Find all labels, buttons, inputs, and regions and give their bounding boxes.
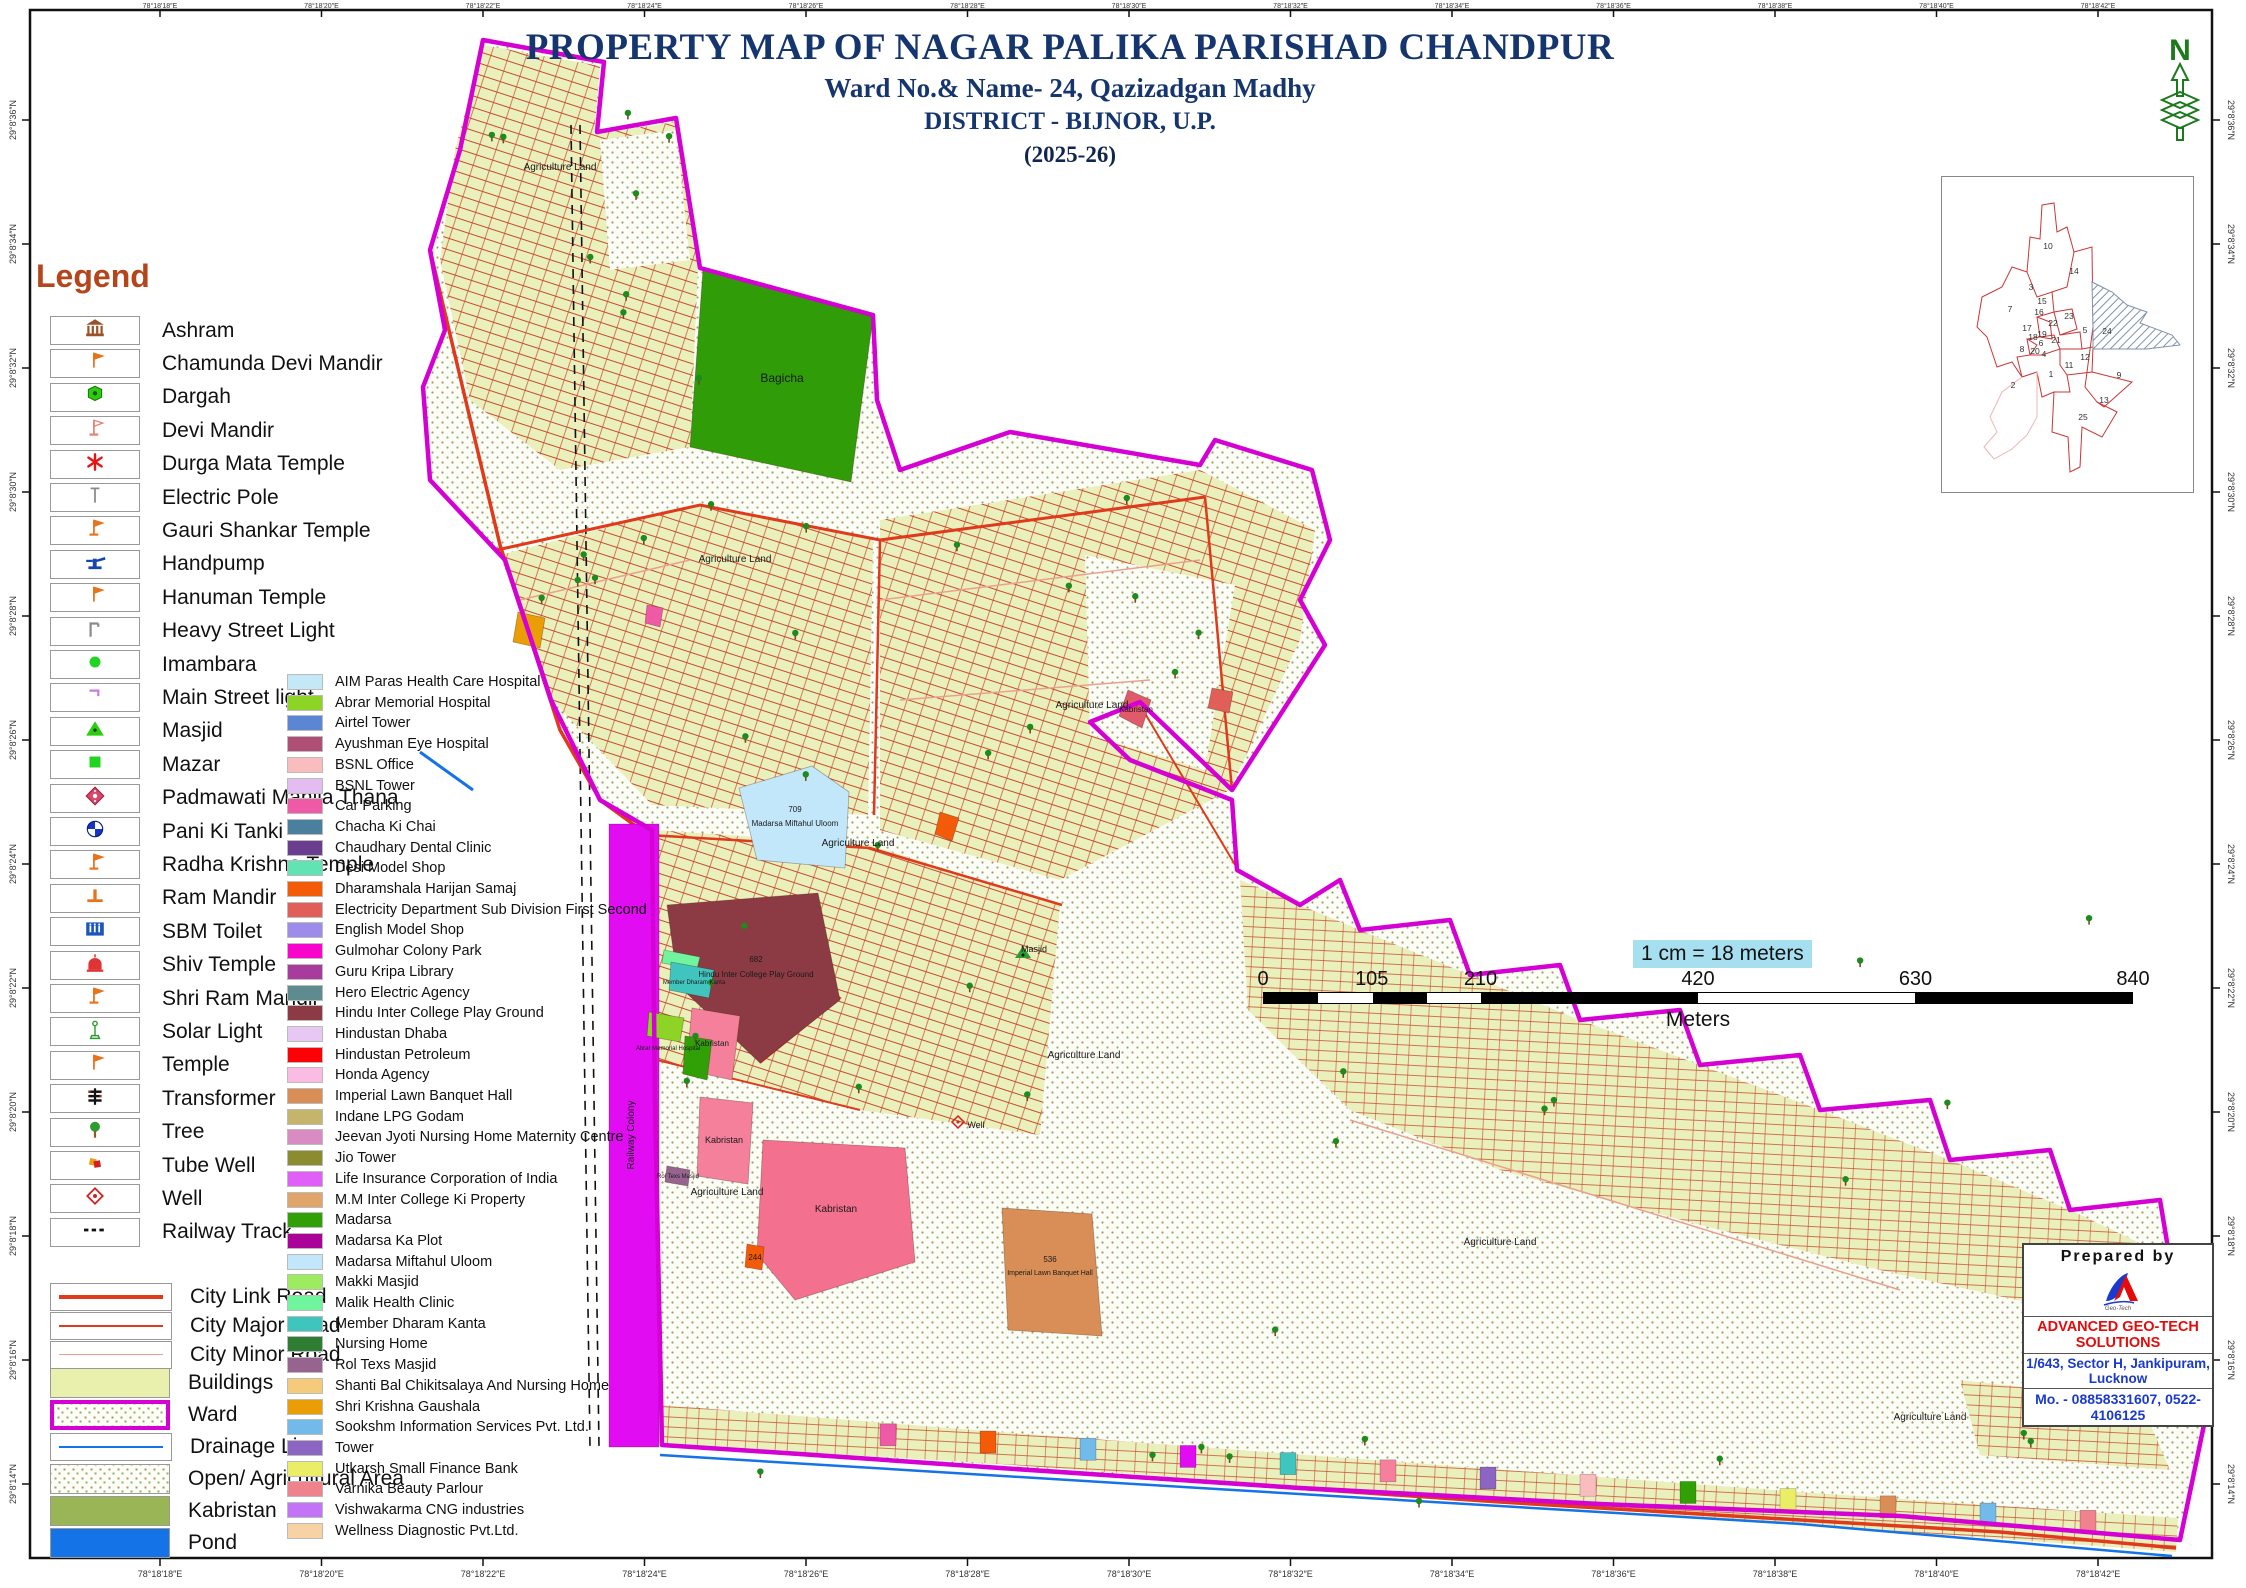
tree-icon bbox=[1857, 957, 1863, 967]
building-legend-item: Jeevan Jyoti Nursing Home Maternity Cent… bbox=[287, 1127, 624, 1147]
solar-icon bbox=[80, 1018, 110, 1045]
map-label: Agriculture Land bbox=[1894, 1412, 1967, 1423]
legend-item-heavy-street-light: Heavy Street Light bbox=[50, 615, 335, 648]
flag-icon bbox=[80, 1052, 110, 1079]
building-legend-item: Chacha Ki Chai bbox=[287, 817, 436, 837]
color-swatch bbox=[287, 1357, 323, 1373]
map-label: Member Dharam Kanta bbox=[663, 980, 726, 986]
building-legend-item: Malik Health Clinic bbox=[287, 1293, 454, 1313]
tree-icon bbox=[80, 1119, 110, 1146]
longitude-tick-label: 78°18'30″E bbox=[1112, 2, 1147, 10]
legend-item-masjid: Masjid bbox=[50, 715, 223, 748]
latitude-tick-label: 29°8'26″N bbox=[8, 720, 18, 760]
map-label: Bagicha bbox=[760, 371, 804, 385]
legend-item-ashram: Ashram bbox=[50, 314, 234, 347]
longitude-tick-label: 78°18'20″E bbox=[299, 1569, 344, 1579]
color-swatch bbox=[287, 1316, 323, 1332]
rammandir-icon bbox=[80, 885, 110, 912]
map-label: Kabristan bbox=[705, 1135, 743, 1145]
building-legend-item: AIM Paras Health Care Hospital bbox=[287, 672, 541, 692]
pole-icon bbox=[80, 484, 110, 511]
legend-item-mazar: Mazar bbox=[50, 748, 220, 781]
page-title: PROPERTY MAP OF NAGAR PALIKA PARISHAD CH… bbox=[480, 26, 1660, 69]
building-legend-item: Gulmohar Colony Park bbox=[287, 941, 482, 961]
longitude-tick-label: 78°18'18″E bbox=[143, 2, 178, 10]
handpump-icon bbox=[80, 551, 110, 578]
map-label: 244 bbox=[748, 1253, 762, 1262]
latitude-tick-label: 29°8'16″N bbox=[8, 1340, 18, 1380]
mainlight-icon bbox=[80, 684, 110, 711]
property-map-page: { "title": { "line1": "PROPERTY MAP OF N… bbox=[0, 0, 2246, 1588]
inset-ward-number: 25 bbox=[2078, 412, 2088, 422]
color-swatch bbox=[287, 1399, 323, 1415]
circle-icon bbox=[80, 651, 110, 678]
tree-icon bbox=[2086, 915, 2092, 925]
band-building bbox=[1780, 1489, 1796, 1511]
railway-icon bbox=[80, 1219, 110, 1246]
tubewell-icon bbox=[80, 1152, 110, 1179]
latitude-tick-label: 29°8'16″N bbox=[2226, 1340, 2236, 1380]
color-swatch bbox=[287, 1378, 323, 1394]
toilet-icon bbox=[80, 918, 110, 945]
building-legend-item: Sookshm Information Services Pvt. Ltd. bbox=[287, 1417, 589, 1437]
color-swatch bbox=[287, 860, 323, 876]
inset-ward-number: 23 bbox=[2064, 311, 2074, 321]
legend-item-sbm-toilet: SBM Toilet bbox=[50, 915, 262, 948]
map-label: Imperial Lawn Banquet Hall bbox=[1007, 1270, 1093, 1277]
ward-index-inset-map: 1014315716232217524191821682041211192132… bbox=[1941, 176, 2194, 493]
legend-item-chamunda-devi-mandir: Chamunda Devi Mandir bbox=[50, 347, 383, 380]
north-arrow-icon: N bbox=[2150, 34, 2210, 144]
building-legend-item: Honda Agency bbox=[287, 1065, 429, 1085]
map-label: 536 bbox=[1043, 1255, 1057, 1264]
inset-ward-number: 24 bbox=[2102, 326, 2112, 336]
longitude-tick-label: 78°18'32″E bbox=[1268, 1569, 1313, 1579]
color-swatch bbox=[287, 1523, 323, 1539]
building-legend-item: Utkarsh Small Finance Bank bbox=[287, 1459, 518, 1479]
latitude-tick-label: 29°8'18″N bbox=[8, 1216, 18, 1256]
latitude-tick-label: 29°8'14″N bbox=[8, 1464, 18, 1504]
band-building bbox=[1380, 1460, 1396, 1482]
map-label: Abrar Memorial Hospital bbox=[636, 1046, 700, 1052]
inset-ward-number: 8 bbox=[2020, 344, 2025, 354]
latitude-tick-label: 29°8'30″N bbox=[2226, 472, 2236, 512]
building-legend-item: Madarsa Ka Plot bbox=[287, 1231, 442, 1251]
building-legend-item: Tower bbox=[287, 1438, 374, 1458]
scale-tick: 630 bbox=[1899, 968, 1932, 991]
building-legend-item: Life Insurance Corporation of India bbox=[287, 1169, 557, 1189]
color-swatch bbox=[287, 1005, 323, 1021]
map-label: Agriculture Land bbox=[691, 1187, 764, 1198]
color-swatch bbox=[287, 1233, 323, 1249]
scale-tick: 420 bbox=[1681, 968, 1714, 991]
latitude-tick-label: 29°8'22″N bbox=[8, 968, 18, 1008]
map-label: Kabristan bbox=[815, 1204, 857, 1215]
legend-item-railway-track: Railway Track bbox=[50, 1216, 293, 1249]
color-swatch bbox=[287, 1088, 323, 1104]
inset-ward-number: 2 bbox=[2011, 380, 2016, 390]
building-legend-item: BSNL Tower bbox=[287, 776, 415, 796]
map-label: Agriculture Land bbox=[699, 554, 772, 565]
longitude-tick-label: 78°18'38″E bbox=[1758, 2, 1793, 10]
inset-ward-number: 12 bbox=[2080, 352, 2090, 362]
legend-item-shri-ram-mandir: Shri Ram Mandir bbox=[50, 982, 320, 1015]
legend-item-well: Well bbox=[50, 1182, 202, 1215]
scale-tick: 0 bbox=[1257, 968, 1268, 991]
map-label: Agriculture Land bbox=[1048, 1050, 1121, 1061]
building-legend-item: Makki Masjid bbox=[287, 1272, 419, 1292]
scale-unit-label: Meters bbox=[1263, 1008, 2133, 1032]
thana-icon bbox=[80, 785, 110, 812]
inset-ward-number: 9 bbox=[2117, 370, 2122, 380]
latitude-tick-label: 29°8'36″N bbox=[2226, 100, 2236, 140]
map-label: Railway Colony bbox=[626, 1101, 637, 1170]
inset-ward-number: 16 bbox=[2034, 307, 2044, 317]
longitude-tick-label: 78°18'40″E bbox=[1914, 1569, 1959, 1579]
latitude-tick-label: 29°8'36″N bbox=[8, 100, 18, 140]
geo-tech-logo: Geo-Tech bbox=[2026, 1267, 2210, 1311]
latitude-tick-label: 29°8'32″N bbox=[2226, 348, 2236, 388]
map-label: Agriculture Land bbox=[822, 838, 895, 849]
color-swatch bbox=[287, 840, 323, 856]
flag-outline-icon bbox=[80, 417, 110, 444]
building-legend-item: Desi Model Shop bbox=[287, 858, 445, 878]
building-legend-item: Varnika Beauty Parlour bbox=[287, 1479, 483, 1499]
flag-base-icon bbox=[80, 517, 110, 544]
color-swatch bbox=[287, 1440, 323, 1456]
legend-item-kabristan: Kabristan bbox=[50, 1494, 277, 1527]
map-label: Madarsa Miftahul Uloom bbox=[752, 819, 839, 828]
longitude-tick-label: 78°18'26″E bbox=[789, 2, 824, 10]
latitude-tick-label: 29°8'20″N bbox=[2226, 1092, 2236, 1132]
building-legend-item: Shanti Bal Chikitsalaya And Nursing Home bbox=[287, 1376, 609, 1396]
color-swatch bbox=[287, 736, 323, 752]
inset-ward-number: 10 bbox=[2043, 241, 2053, 251]
map-label: Masjid bbox=[1021, 944, 1047, 954]
legend-item-transformer: Transformer bbox=[50, 1082, 276, 1115]
building-legend-item: Nursing Home bbox=[287, 1334, 428, 1354]
inset-ward-number: 22 bbox=[2048, 318, 2058, 328]
legend-item-solar-light: Solar Light bbox=[50, 1015, 262, 1048]
shiv-icon bbox=[80, 952, 110, 979]
inset-ward-number: 3 bbox=[2029, 282, 2034, 292]
color-swatch bbox=[287, 902, 323, 918]
building-legend-item: Abrar Memorial Hospital bbox=[287, 693, 491, 713]
legend-item-tree: Tree bbox=[50, 1116, 204, 1149]
band-building bbox=[1580, 1474, 1596, 1496]
building-legend-item: Indane LPG Godam bbox=[287, 1107, 464, 1127]
band-building bbox=[1280, 1453, 1296, 1475]
building-legend-item: Hero Electric Agency bbox=[287, 983, 470, 1003]
map-label: Agriculture Land bbox=[1056, 700, 1129, 711]
legend-item-shiv-temple: Shiv Temple bbox=[50, 949, 276, 982]
scale-tick: 210 bbox=[1464, 968, 1497, 991]
longitude-tick-label: 78°18'42″E bbox=[2076, 1569, 2121, 1579]
building-legend-item: Chaudhary Dental Clinic bbox=[287, 838, 491, 858]
latitude-tick-label: 29°8'14″N bbox=[2226, 1464, 2236, 1504]
band-building bbox=[2080, 1510, 2096, 1532]
color-swatch bbox=[287, 1171, 323, 1187]
building-legend-item: Airtel Tower bbox=[287, 713, 410, 733]
color-swatch bbox=[287, 1461, 323, 1477]
color-swatch bbox=[287, 943, 323, 959]
inset-ward-number: 1 bbox=[2049, 369, 2054, 379]
color-swatch bbox=[287, 798, 323, 814]
asterisk-icon bbox=[80, 451, 110, 478]
color-swatch bbox=[287, 1336, 323, 1352]
color-swatch bbox=[287, 922, 323, 938]
map-label: Well bbox=[967, 1120, 984, 1130]
building-legend-item: Imperial Lawn Banquet Hall bbox=[287, 1086, 512, 1106]
longitude-tick-label: 78°18'34″E bbox=[1430, 1569, 1475, 1579]
building-legend-item: M.M Inter College Ki Property bbox=[287, 1190, 525, 1210]
legend-item-ram-mandir: Ram Mandir bbox=[50, 882, 276, 915]
band-building bbox=[880, 1424, 896, 1446]
legend-item-buildings: Buildings bbox=[50, 1366, 273, 1399]
building-legend-item: Vishwakarma CNG industries bbox=[287, 1500, 524, 1520]
inset-ward24-highlight bbox=[2092, 282, 2180, 349]
color-swatch bbox=[287, 778, 323, 794]
well-icon bbox=[80, 1185, 110, 1212]
color-swatch bbox=[287, 1150, 323, 1166]
color-swatch bbox=[287, 1254, 323, 1270]
latitude-tick-label: 29°8'22″N bbox=[2226, 968, 2236, 1008]
masjid-icon bbox=[80, 718, 110, 745]
legend-item-imambara: Imambara bbox=[50, 648, 257, 681]
band-building bbox=[1180, 1445, 1196, 1467]
color-swatch bbox=[287, 1295, 323, 1311]
building-legend-item: Ayushman Eye Hospital bbox=[287, 734, 489, 754]
flag-icon bbox=[80, 350, 110, 377]
color-swatch bbox=[287, 674, 323, 690]
building-legend-item: Wellness Diagnostic Pvt.Ltd. bbox=[287, 1521, 518, 1541]
latitude-tick-label: 29°8'34″N bbox=[8, 224, 18, 264]
legend-item-main-street-light: Main Street light bbox=[50, 681, 314, 714]
year-subtitle: (2025-26) bbox=[480, 142, 1660, 168]
inset-ward-number: 11 bbox=[2065, 360, 2074, 370]
legend-item-electric-pole: Electric Pole bbox=[50, 481, 279, 514]
legend-item-pani-ki-tanki: Pani Ki Tanki bbox=[50, 815, 283, 848]
flag-base-icon bbox=[80, 851, 110, 878]
building-legend-item: Guru Kripa Library bbox=[287, 962, 453, 982]
map-label: 709 bbox=[788, 805, 802, 814]
scale-bar-segments bbox=[1263, 992, 2133, 1004]
color-swatch bbox=[287, 964, 323, 980]
longitude-tick-label: 78°18'20″E bbox=[304, 2, 339, 10]
longitude-tick-label: 78°18'34″E bbox=[1435, 2, 1470, 10]
band-building bbox=[1480, 1467, 1496, 1489]
latitude-tick-label: 29°8'34″N bbox=[2226, 224, 2236, 264]
longitude-tick-label: 78°18'22″E bbox=[466, 2, 501, 10]
longitude-tick-label: 78°18'42″E bbox=[2081, 2, 2116, 10]
color-swatch bbox=[287, 985, 323, 1001]
latitude-tick-label: 29°8'26″N bbox=[2226, 720, 2236, 760]
legend-heading: Legend bbox=[36, 258, 150, 295]
transformer-icon bbox=[80, 1085, 110, 1112]
color-swatch bbox=[287, 1502, 323, 1518]
map-label: 682 bbox=[749, 955, 763, 964]
longitude-tick-label: 78°18'28″E bbox=[950, 2, 985, 10]
building-legend-item: English Model Shop bbox=[287, 920, 464, 940]
longitude-tick-label: 78°18'18″E bbox=[138, 1569, 183, 1579]
building-legend-item: Hindustan Petroleum bbox=[287, 1045, 470, 1065]
longitude-tick-label: 78°18'28″E bbox=[945, 1569, 990, 1579]
title-block: PROPERTY MAP OF NAGAR PALIKA PARISHAD CH… bbox=[480, 26, 1660, 168]
inset-ward-number: 18 bbox=[2028, 332, 2038, 342]
color-swatch bbox=[287, 1109, 323, 1125]
prepared-by-company: ADVANCED GEO-TECH SOLUTIONS bbox=[2024, 1316, 2212, 1353]
color-swatch bbox=[287, 881, 323, 897]
color-swatch bbox=[287, 1419, 323, 1435]
tree-icon bbox=[757, 1468, 763, 1478]
building-legend-item: Car Parking bbox=[287, 796, 412, 816]
scale-bar: 0105210420630840 Meters bbox=[1248, 968, 2148, 1032]
latitude-tick-label: 29°8'32″N bbox=[8, 348, 18, 388]
inset-ward-number: 14 bbox=[2069, 266, 2079, 276]
longitude-tick-label: 78°18'24″E bbox=[627, 2, 662, 10]
longitude-tick-label: 78°18'22″E bbox=[461, 1569, 506, 1579]
longitude-tick-label: 78°18'40″E bbox=[1919, 2, 1954, 10]
legend-item-hanuman-temple: Hanuman Temple bbox=[50, 581, 326, 614]
inset-ward-number: 4 bbox=[2042, 349, 2047, 359]
legend-item-durga-mata-temple: Durga Mata Temple bbox=[50, 448, 345, 481]
scale-tick: 105 bbox=[1355, 968, 1388, 991]
legend-item-drainage-line: Drainage Line bbox=[50, 1430, 321, 1463]
band-building bbox=[1680, 1481, 1696, 1503]
prepared-by-box: Prepared by Geo-Tech ADVANCED GEO-TECH S… bbox=[2022, 1243, 2214, 1427]
ashram-icon bbox=[80, 317, 110, 344]
inset-ward-number: 21 bbox=[2051, 335, 2061, 345]
inset-ward-number: 13 bbox=[2099, 395, 2109, 405]
map-label: Hindu Inter College Play Ground bbox=[698, 970, 813, 979]
legend-item-tube-well: Tube Well bbox=[50, 1149, 255, 1182]
latitude-tick-label: 29°8'24″N bbox=[8, 844, 18, 884]
flag-base-icon bbox=[80, 985, 110, 1012]
prepared-by-heading: Prepared by bbox=[2024, 1245, 2212, 1267]
legend-item-ward: Ward bbox=[50, 1398, 237, 1431]
building-legend-item: Madarsa bbox=[287, 1210, 391, 1230]
feature-car-parking-dot bbox=[645, 605, 663, 627]
latitude-tick-label: 29°8'28″N bbox=[8, 596, 18, 636]
inset-ward-number: 5 bbox=[2083, 325, 2088, 335]
building-legend-item: Jio Tower bbox=[287, 1148, 396, 1168]
prepared-by-phone: Mo. - 08858331607, 0522-4106125 bbox=[2024, 1388, 2212, 1425]
scale-tick-labels: 0105210420630840 bbox=[1248, 968, 2148, 992]
longitude-tick-label: 78°18'36″E bbox=[1591, 1569, 1636, 1579]
color-swatch bbox=[287, 1481, 323, 1497]
ward-subtitle: Ward No.& Name- 24, Qazizadgan Madhy bbox=[480, 73, 1660, 104]
building-legend-item: Hindu Inter College Play Ground bbox=[287, 1003, 544, 1023]
color-swatch bbox=[287, 1067, 323, 1083]
color-swatch bbox=[287, 1212, 323, 1228]
legend-item-pond: Pond bbox=[50, 1526, 237, 1559]
longitude-tick-label: 78°18'38″E bbox=[1753, 1569, 1798, 1579]
latitude-tick-label: 29°8'28″N bbox=[2226, 596, 2236, 636]
latitude-tick-label: 29°8'18″N bbox=[2226, 1216, 2236, 1256]
color-swatch bbox=[287, 819, 323, 835]
band-building bbox=[1080, 1438, 1096, 1460]
color-swatch bbox=[287, 715, 323, 731]
color-swatch bbox=[287, 695, 323, 711]
longitude-tick-label: 78°18'32″E bbox=[1273, 2, 1308, 10]
color-swatch bbox=[287, 1129, 323, 1145]
latitude-tick-label: 29°8'30″N bbox=[8, 472, 18, 512]
svg-text:Geo-Tech: Geo-Tech bbox=[2105, 1306, 2132, 1311]
latitude-tick-label: 29°8'24″N bbox=[2226, 844, 2236, 884]
building-legend-item: Rol Texs Masjid bbox=[287, 1355, 436, 1375]
streetlight-icon bbox=[80, 618, 110, 645]
flag-icon bbox=[80, 584, 110, 611]
tanki-icon bbox=[80, 818, 110, 845]
building-legend-item: Madarsa Miftahul Uloom bbox=[287, 1252, 492, 1272]
legend-item-dargah: Dargah bbox=[50, 381, 231, 414]
longitude-tick-label: 78°18'26″E bbox=[784, 1569, 829, 1579]
inset-ward-number: 7 bbox=[2008, 304, 2013, 314]
scale-tick: 840 bbox=[2116, 968, 2149, 991]
color-swatch bbox=[287, 1047, 323, 1063]
color-swatch bbox=[287, 1192, 323, 1208]
legend-item-devi-mandir: Devi Mandir bbox=[50, 414, 274, 447]
map-label: Agriculture Land bbox=[1464, 1237, 1537, 1248]
building-legend-item: BSNL Office bbox=[287, 755, 414, 775]
building-legend-item: Hindustan Dhaba bbox=[287, 1024, 447, 1044]
color-swatch bbox=[287, 1026, 323, 1042]
building-legend-item: Shri Krishna Gaushala bbox=[287, 1397, 480, 1417]
longitude-tick-label: 78°18'30″E bbox=[1107, 1569, 1152, 1579]
legend-item-handpump: Handpump bbox=[50, 548, 265, 581]
building-legend-item: Dharamshala Harijan Samaj bbox=[287, 879, 516, 899]
map-label: Rol Texs Masjid bbox=[657, 1174, 699, 1180]
band-building bbox=[980, 1431, 996, 1453]
tree-icon bbox=[1416, 1498, 1422, 1508]
building-legend-item: Member Dharam Kanta bbox=[287, 1314, 486, 1334]
mazar-icon bbox=[80, 751, 110, 778]
tree-icon bbox=[1944, 1099, 1950, 1109]
dargah-icon bbox=[80, 384, 110, 411]
building-legend-item: Electricity Department Sub Division Firs… bbox=[287, 900, 647, 920]
longitude-tick-label: 78°18'36″E bbox=[1596, 2, 1631, 10]
inset-ward-number: 15 bbox=[2037, 296, 2047, 306]
inset-ward-number: 20 bbox=[2030, 346, 2040, 356]
latitude-tick-label: 29°8'20″N bbox=[8, 1092, 18, 1132]
feature-electricity-dept bbox=[1208, 688, 1233, 713]
district-subtitle: DISTRICT - BIJNOR, U.P. bbox=[480, 108, 1660, 136]
scale-note: 1 cm = 18 meters bbox=[1633, 940, 1812, 968]
legend-item-temple: Temple bbox=[50, 1049, 230, 1082]
color-swatch bbox=[287, 1274, 323, 1290]
prepared-by-address: 1/643, Sector H, Jankipuram, Lucknow bbox=[2024, 1353, 2212, 1388]
color-swatch bbox=[287, 757, 323, 773]
legend-item-gauri-shankar-temple: Gauri Shankar Temple bbox=[50, 514, 371, 547]
longitude-tick-label: 78°18'24″E bbox=[622, 1569, 667, 1579]
